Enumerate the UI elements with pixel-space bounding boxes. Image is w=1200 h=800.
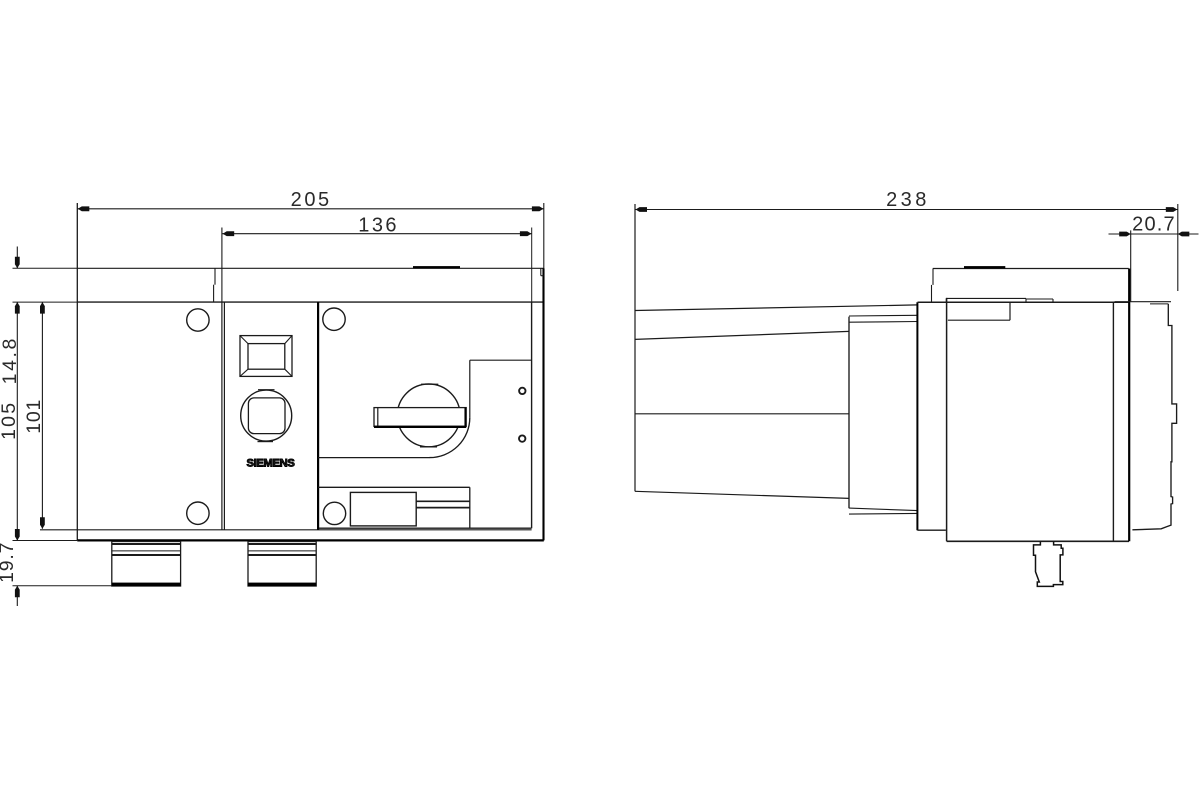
svg-text:14.8: 14.8 <box>0 336 21 384</box>
svg-text:238: 238 <box>886 189 930 211</box>
svg-text:205: 205 <box>291 189 332 211</box>
svg-text:136: 136 <box>358 214 399 236</box>
svg-text:SIEMENS: SIEMENS <box>247 458 296 470</box>
svg-text:101: 101 <box>23 399 45 434</box>
svg-text:19.7: 19.7 <box>0 542 18 583</box>
svg-text:105: 105 <box>0 401 20 440</box>
svg-text:20.7: 20.7 <box>1132 213 1176 235</box>
